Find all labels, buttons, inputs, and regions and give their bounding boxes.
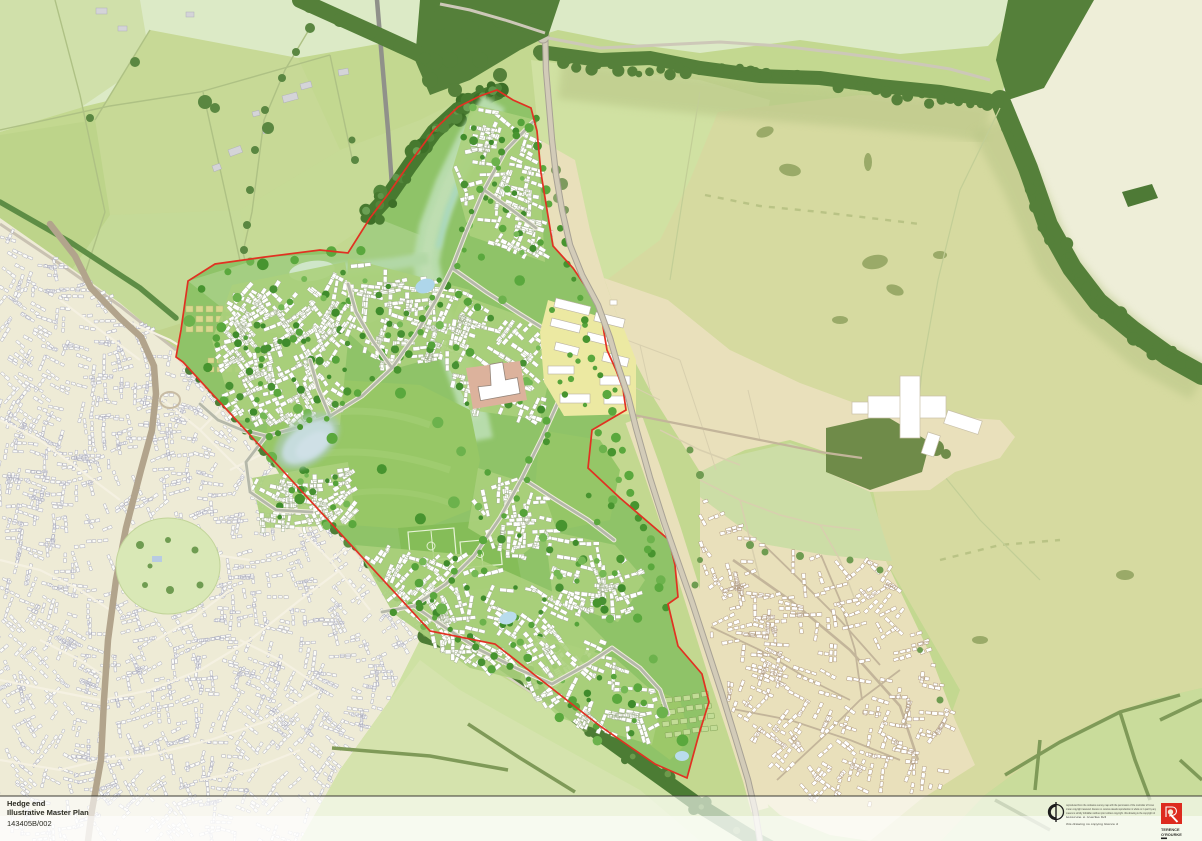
svg-text:143405B/002: 143405B/002 bbox=[7, 819, 52, 828]
svg-text:crown copyright reserved. lice: crown copyright reserved. licence no. te… bbox=[1066, 807, 1157, 811]
svg-text:reproduced from the ordnance s: reproduced from the ordnance survey map … bbox=[1066, 803, 1154, 807]
svg-text:Hedge end: Hedge end bbox=[7, 799, 46, 808]
svg-text:terence o rourke ltd: terence o rourke ltd bbox=[1066, 815, 1107, 819]
svg-text:O'ROURKE: O'ROURKE bbox=[1161, 832, 1182, 837]
svg-text:Illustrative Master Plan: Illustrative Master Plan bbox=[7, 808, 89, 817]
svg-text:means is strictly forbidden wi: means is strictly forbidden without prio… bbox=[1066, 811, 1155, 815]
svg-text:this drawing no copying licenc: this drawing no copying licence d bbox=[1066, 822, 1119, 826]
